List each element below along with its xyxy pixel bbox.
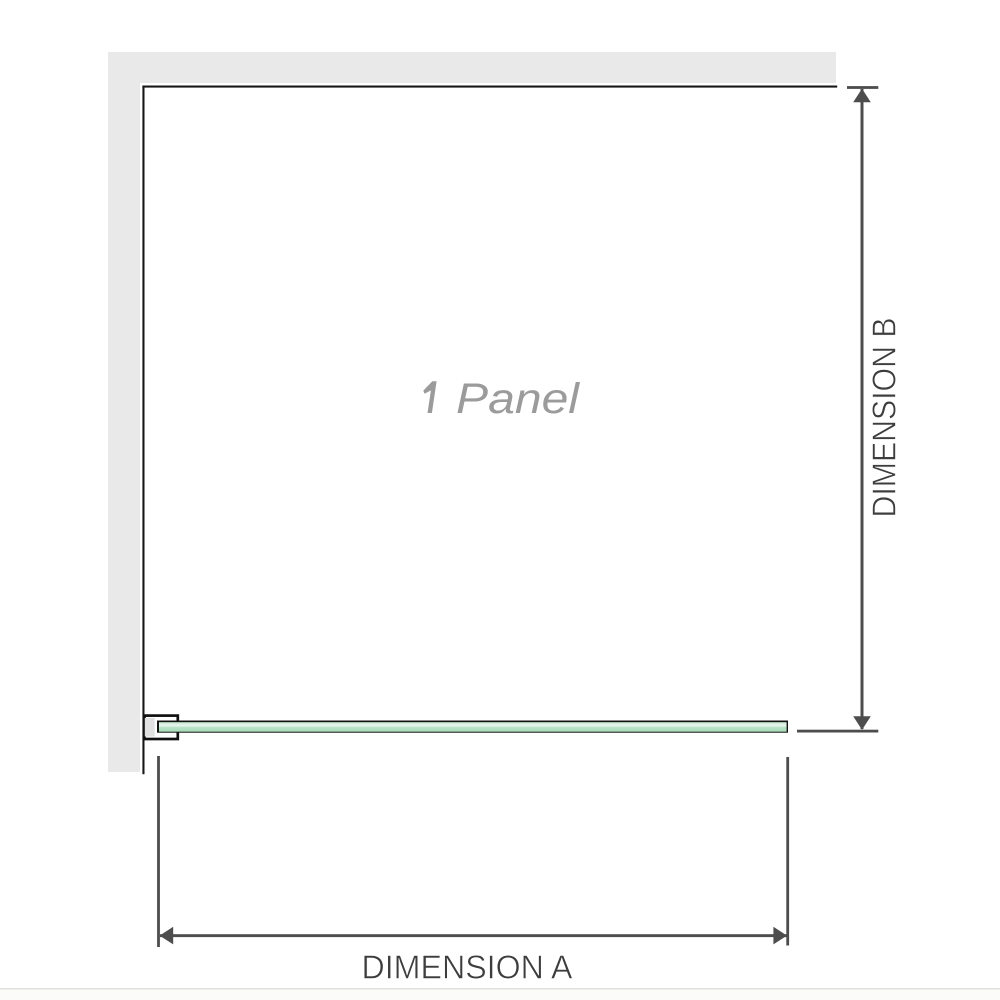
svg-text:Panel: Panel — [456, 375, 581, 423]
svg-text:DIMENSION A: DIMENSION A — [362, 948, 573, 985]
svg-text:DIMENSION B: DIMENSION B — [865, 318, 902, 518]
